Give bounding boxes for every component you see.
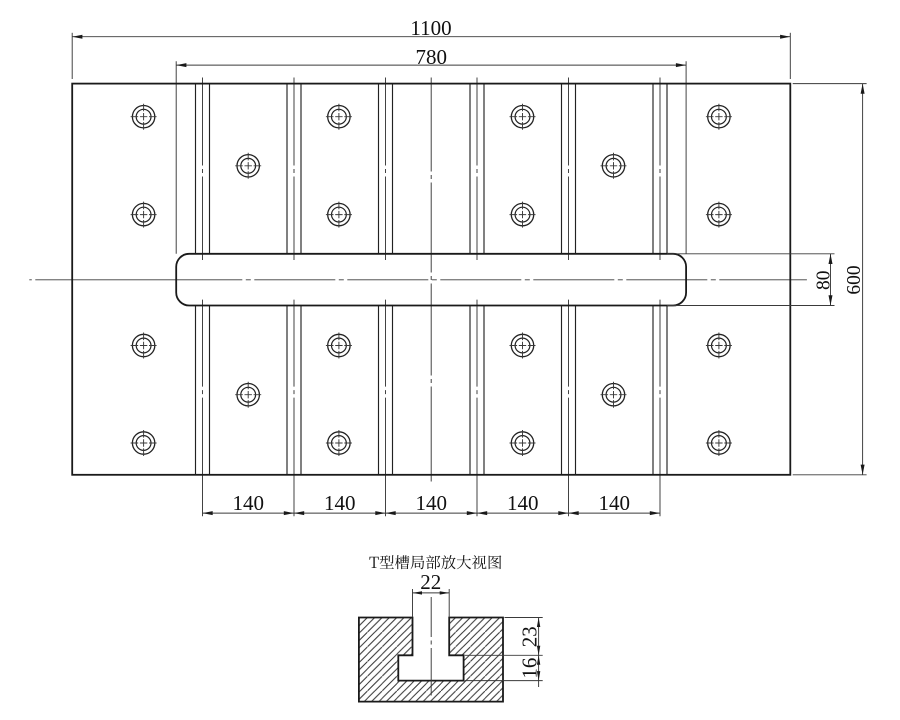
svg-text:140: 140 <box>324 491 356 515</box>
svg-text:140: 140 <box>416 491 448 515</box>
svg-text:23: 23 <box>518 626 542 647</box>
svg-text:80: 80 <box>814 270 835 290</box>
svg-text:16: 16 <box>518 658 542 679</box>
svg-text:600: 600 <box>844 265 865 294</box>
svg-text:140: 140 <box>599 491 631 515</box>
svg-text:140: 140 <box>507 491 539 515</box>
svg-text:140: 140 <box>233 491 265 515</box>
svg-text:780: 780 <box>415 45 447 69</box>
svg-text:22: 22 <box>420 570 441 594</box>
svg-text:1100: 1100 <box>410 16 451 40</box>
